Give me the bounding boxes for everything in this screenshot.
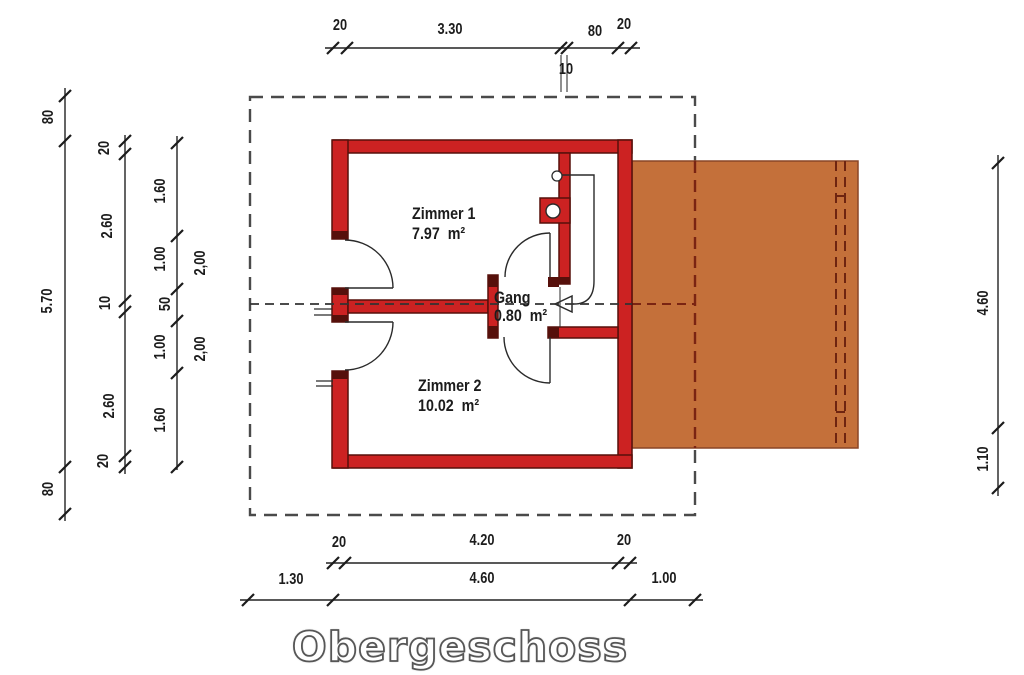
dim-label: 2,00	[192, 337, 210, 362]
room-area-gang: 0.80 m²	[494, 306, 547, 326]
room-area-zimmer2: 10.02 m²	[418, 396, 479, 416]
dim-label: 20	[332, 534, 346, 552]
room-label-zimmer1: Zimmer 1	[412, 204, 475, 224]
dim-label: 2.60	[101, 394, 119, 419]
dim-label: 3.30	[438, 21, 463, 39]
room-area-zimmer1: 7.97 m²	[412, 224, 465, 244]
dim-label: 2.60	[99, 214, 117, 239]
page-title: Obergeschoss	[292, 623, 628, 671]
room-label-zimmer2: Zimmer 2	[418, 376, 481, 396]
dim-label: 20	[96, 141, 114, 155]
dim-label: 5.70	[39, 289, 57, 314]
dim-label: 1.30	[279, 571, 304, 589]
dim-label: 50	[157, 297, 175, 311]
dim-label: 2,00	[192, 251, 210, 276]
dim-label: 10	[559, 61, 573, 79]
dim-label: 20	[95, 454, 113, 468]
dim-label: 10	[97, 296, 115, 310]
dim-label: 1.60	[152, 408, 170, 433]
dim-label: 1.00	[152, 247, 170, 272]
dim-label: 4.60	[470, 570, 495, 588]
dim-label: 1.00	[152, 335, 170, 360]
dim-label: 80	[40, 110, 58, 124]
dim-label: 1.10	[975, 447, 993, 472]
text-layer: 20 3.30 10 80 20 20 4.20 20 1.30 4.60 1.…	[0, 0, 1024, 675]
dim-label: 4.60	[975, 291, 993, 316]
dim-label: 80	[588, 23, 602, 41]
dim-label: 4.20	[470, 532, 495, 550]
dim-label: 20	[617, 16, 631, 34]
dim-label: 1.00	[652, 570, 677, 588]
dim-label: 80	[40, 482, 58, 496]
room-label-gang: Gang	[494, 288, 531, 308]
dim-label: 20	[333, 17, 347, 35]
dim-label: 20	[617, 532, 631, 550]
dim-label: 1.60	[152, 179, 170, 204]
